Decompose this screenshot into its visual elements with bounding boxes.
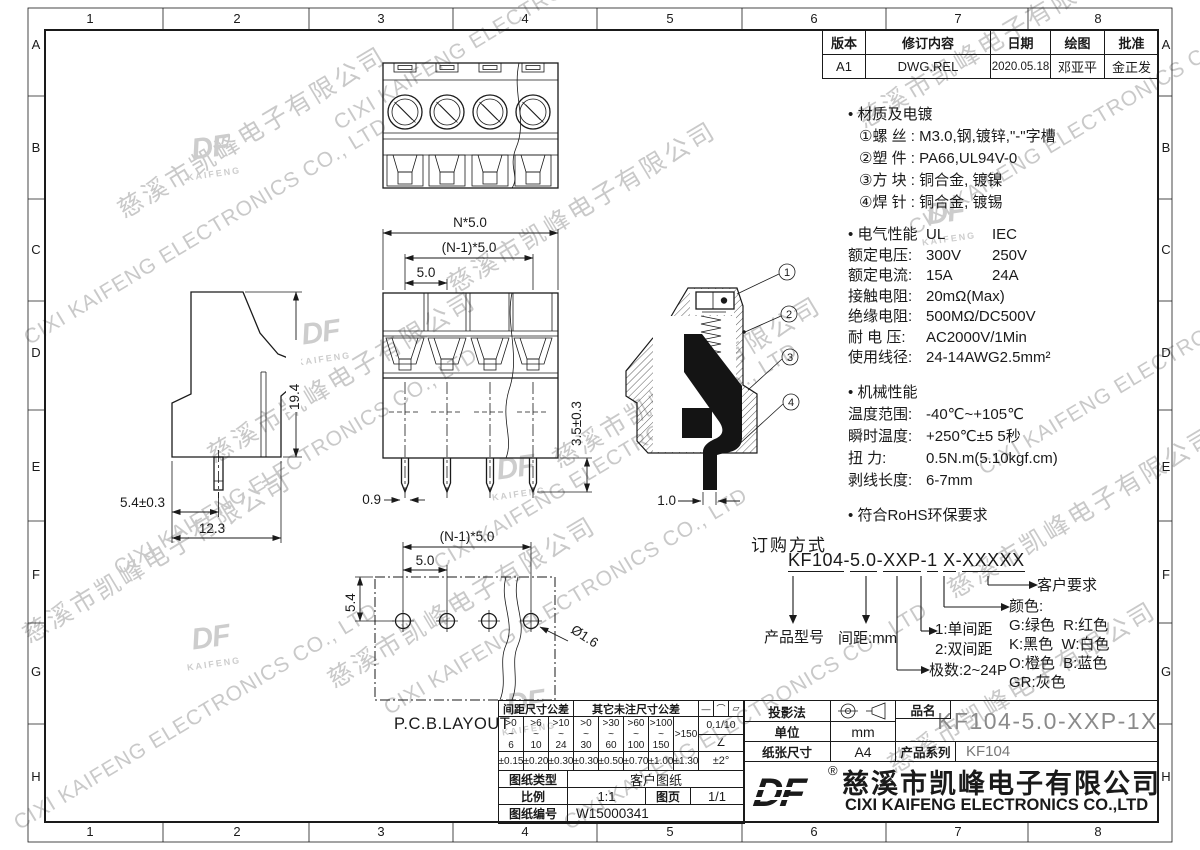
break-line: [512, 63, 521, 188]
mechanical-section-title: • 机械性能: [848, 382, 1160, 404]
revision-table: 版本 修订内容 日期 绘图 批准 A1 DWG.REL 2020.05.18 邓…: [822, 30, 1159, 79]
dim-side-width: 12.3: [199, 521, 225, 536]
grid-col-label: 4: [516, 824, 534, 840]
engineering-drawing-page: { "frame": { "cols": ["1","2","3","4","5…: [0, 0, 1200, 850]
break-line: [506, 293, 514, 458]
tol-range: >60 ~ 100: [624, 717, 649, 752]
tol-header-other: 其它未注尺寸公差: [574, 701, 699, 717]
mechanical-row: 温度范围:-40℃~+105℃: [848, 404, 1160, 426]
grid-row-label: F: [27, 567, 45, 583]
paper-size-value: A4: [831, 742, 896, 762]
unit-label: 单位: [744, 722, 831, 742]
dim-pin-length: 3.5±0.3: [569, 401, 584, 446]
dim-side-height: 19.4: [287, 383, 302, 410]
drawing-type-label: 图纸类型: [499, 771, 568, 788]
grid-row-label: A: [27, 37, 45, 53]
grid-row-label: B: [27, 140, 45, 156]
title-block: 投影法 KF104-5.0-XXP-1X 品名 单位 mm 纸张尺寸 A4 产品…: [743, 700, 1158, 822]
revision-date: 2020.05.18: [991, 54, 1051, 78]
revision-header: 日期: [991, 30, 1051, 54]
tol-range: >10 ~ 24: [549, 717, 574, 752]
flatness-icon: ▱: [729, 701, 743, 716]
page-label: 图页: [646, 788, 691, 805]
revision-header: 绘图: [1051, 30, 1105, 54]
first-angle-projection-icon: [833, 701, 893, 721]
grid-row-label: C: [27, 242, 45, 258]
material-item: ②塑 件 : PA66,UL94V-0: [848, 148, 1160, 170]
revision-version: A1: [823, 54, 866, 78]
ordering-color-row: O:橙色 B:蓝色: [1009, 655, 1107, 673]
paper-size-label: 纸张尺寸: [744, 742, 831, 762]
drawing-number-value: W15000341: [568, 805, 744, 823]
electrical-row: 额定电压:300V250V: [848, 246, 1160, 267]
callout-2: 2: [786, 309, 792, 321]
grid-row-label: G: [1157, 664, 1175, 680]
kaifeng-logo: DF: [751, 773, 806, 813]
electrical-row: 耐 电 压:AC2000V/1Min: [848, 328, 1160, 349]
revision-drawn-by: 邓亚平: [1051, 54, 1105, 78]
projection-symbol: [831, 701, 896, 722]
scale-value: 1:1: [568, 788, 646, 805]
revision-header: 批准: [1105, 30, 1159, 54]
grid-col-label: 1: [81, 11, 99, 27]
grid-col-label: 1: [81, 824, 99, 840]
grid-row-label: A: [1157, 37, 1175, 53]
dim-pin-width: 0.9: [362, 492, 381, 507]
ordering-color-title: 颜色:: [1009, 598, 1043, 616]
tol-value: ±0.30: [549, 752, 574, 771]
ordering-customer-label: 客户要求: [1037, 577, 1097, 595]
dim-pcb-offset: 5.4: [343, 593, 358, 612]
dim-pitch: 5.0: [417, 265, 436, 280]
dim-pcb-pitch: 5.0: [416, 553, 435, 568]
electrical-row: 绝缘电阻:500MΩ/DC500V: [848, 307, 1160, 328]
product-series-value: KF104: [956, 742, 1159, 762]
mechanical-row: 剥线长度:6-7mm: [848, 470, 1160, 492]
screw-symbols: [388, 95, 550, 129]
tol-value: ±1.30: [674, 752, 699, 771]
straightness-icon: —: [699, 701, 714, 716]
registered-mark: ®: [828, 763, 838, 778]
page-value: 1/1: [691, 788, 743, 805]
grid-col-label: 8: [1089, 11, 1107, 27]
tol-range: >0 ~ 30: [574, 717, 599, 752]
material-item: ③方 块 : 铜合金, 镀镍: [848, 170, 1160, 192]
grid-row-label: G: [27, 664, 45, 680]
tol-range: >6 ~ 10: [524, 717, 549, 752]
grid-col-label: 2: [228, 11, 246, 27]
tolerance-table: 间距尺寸公差 其它未注尺寸公差 — ⌒ ▱ >0 ~ 6 >6 ~ 10 >10…: [498, 700, 745, 824]
dim-section-pin: 1.0: [657, 493, 676, 508]
material-section-title: • 材质及电镀: [848, 104, 1160, 126]
grid-col-label: 3: [372, 11, 390, 27]
ordering-tree: [793, 576, 1029, 670]
tol-value: ±0.70: [624, 752, 649, 771]
rohs-note: • 符合RoHS环保要求: [848, 505, 1160, 527]
tol-header-symbols: — ⌒ ▱: [699, 701, 743, 717]
dim-pcb-hole: Ø1.6: [568, 622, 601, 651]
dim-pcb-span: (N-1)*5.0: [440, 529, 495, 544]
electrical-row: 额定电流:15A24A: [848, 266, 1160, 287]
tol-geo-cells: 0.1/10 ∠: [699, 717, 743, 752]
clamp-block: [682, 408, 712, 438]
tol-range: >150: [674, 717, 699, 752]
callout-1: 1: [784, 267, 790, 279]
electrical-row: 接触电阻:20mΩ(Max): [848, 287, 1160, 308]
grid-row-label: D: [27, 345, 45, 361]
ordering-color-row: GR:灰色: [1009, 674, 1066, 692]
tol-value: ±0.15: [499, 752, 524, 771]
tol-header-pitch: 间距尺寸公差: [499, 701, 574, 717]
tol-value: ±0.50: [599, 752, 624, 771]
ordering-code: KF104-5.0-XXP-1 X-XXXXX: [788, 550, 1025, 571]
ordering-pitch-type-2: 2:双间距: [935, 641, 993, 659]
mechanical-row: 扭 力:0.5N.m(5.10kgf.cm): [848, 448, 1160, 470]
grid-row-label: H: [27, 769, 45, 785]
revision-content: DWG.REL: [866, 54, 991, 78]
revision-header: 修订内容: [866, 30, 991, 54]
unit-value: mm: [831, 722, 896, 742]
scale-label: 比例: [499, 788, 568, 805]
material-item: ①螺 丝 : M3.0,钢,镀锌,"-"字槽: [848, 126, 1160, 148]
tol-value: ±1.00: [649, 752, 674, 771]
section-view: 1 2 3 4 1.0: [626, 264, 799, 508]
ordering-tree-arrows: [789, 581, 1038, 674]
product-name-label: 品名: [896, 701, 951, 719]
grid-col-label: 5: [661, 11, 679, 27]
grid-row-label: E: [27, 459, 45, 475]
ordering-color-row: G:绿色 R:红色: [1009, 617, 1108, 635]
callout-4: 4: [788, 397, 794, 409]
solder-pins: [402, 458, 537, 492]
material-item: ④焊 针 : 铜合金, 镀锡: [848, 192, 1160, 214]
grid-col-label: 7: [949, 824, 967, 840]
angle-tolerance: ±2°: [699, 752, 743, 771]
dim-total-width: N*5.0: [453, 215, 487, 230]
mechanical-row: 瞬时温度:+250℃±5 5秒: [848, 426, 1160, 448]
grid-col-label: 3: [372, 824, 390, 840]
grid-col-label: 7: [949, 11, 967, 27]
tol-value: ±0.30: [574, 752, 599, 771]
dim-side-offset: 5.4±0.3: [120, 495, 165, 510]
company-name-en: CIXI KAIFENG ELECTRONICS CO.,LTD: [845, 796, 1148, 815]
drawing-number-label: 图纸编号: [499, 805, 568, 823]
grid-col-label: 4: [516, 11, 534, 27]
ordering-poles-label: 极数:2~24P: [929, 662, 1007, 680]
dim-span: (N-1)*5.0: [442, 240, 497, 255]
electrical-row: 使用线径:24-14AWG2.5mm²: [848, 348, 1160, 369]
grid-col-label: 2: [228, 824, 246, 840]
grid-col-label: 8: [1089, 824, 1107, 840]
grid-row-label: F: [1157, 567, 1175, 583]
tol-value: ±0.20: [524, 752, 549, 771]
grid-col-label: 6: [805, 824, 823, 840]
flatness-tolerance: 0.1/10: [699, 717, 743, 735]
spec-notes: • 材质及电镀 ①螺 丝 : M3.0,钢,镀锌,"-"字槽 ②塑 件 : PA…: [848, 104, 1160, 527]
top-view: [383, 63, 558, 188]
tol-range: >100 ~ 150: [649, 717, 674, 752]
break-line: [512, 577, 521, 700]
callout-3: 3: [787, 352, 793, 364]
grid-col-label: 5: [661, 824, 679, 840]
projection-label: 投影法: [744, 701, 831, 722]
ordering-pitch-type-1: 1:单间距: [935, 621, 993, 639]
break-line: [500, 577, 509, 700]
electrical-section-title: • 电气性能 UL IEC: [848, 225, 1160, 246]
front-view: N*5.0 (N-1)*5.0 5.0: [362, 215, 592, 507]
product-series-label: 产品系列: [896, 742, 956, 762]
ordering-pitch-label: 间距:mm: [838, 630, 897, 648]
angle-icon: ∠: [699, 735, 743, 752]
ordering-model-label: 产品型号: [764, 629, 824, 647]
arc-icon: ⌒: [714, 701, 729, 716]
grid-col-label: 6: [805, 11, 823, 27]
revision-approved-by: 金正发: [1105, 54, 1159, 78]
pcb-layout-label: P.C.B.LAYOUT: [394, 715, 510, 733]
callout-bubbles: 1 2 3 4: [779, 264, 799, 410]
revision-header: 版本: [823, 30, 866, 54]
drawing-type-value: 客户图纸: [568, 771, 744, 788]
ordering-color-row: K:黑色 W:白色: [1009, 636, 1110, 654]
tol-range: >0 ~ 6: [499, 717, 524, 752]
tol-range: >30 ~ 60: [599, 717, 624, 752]
side-view: 19.4 5.4±0.3 12.3: [120, 292, 302, 543]
